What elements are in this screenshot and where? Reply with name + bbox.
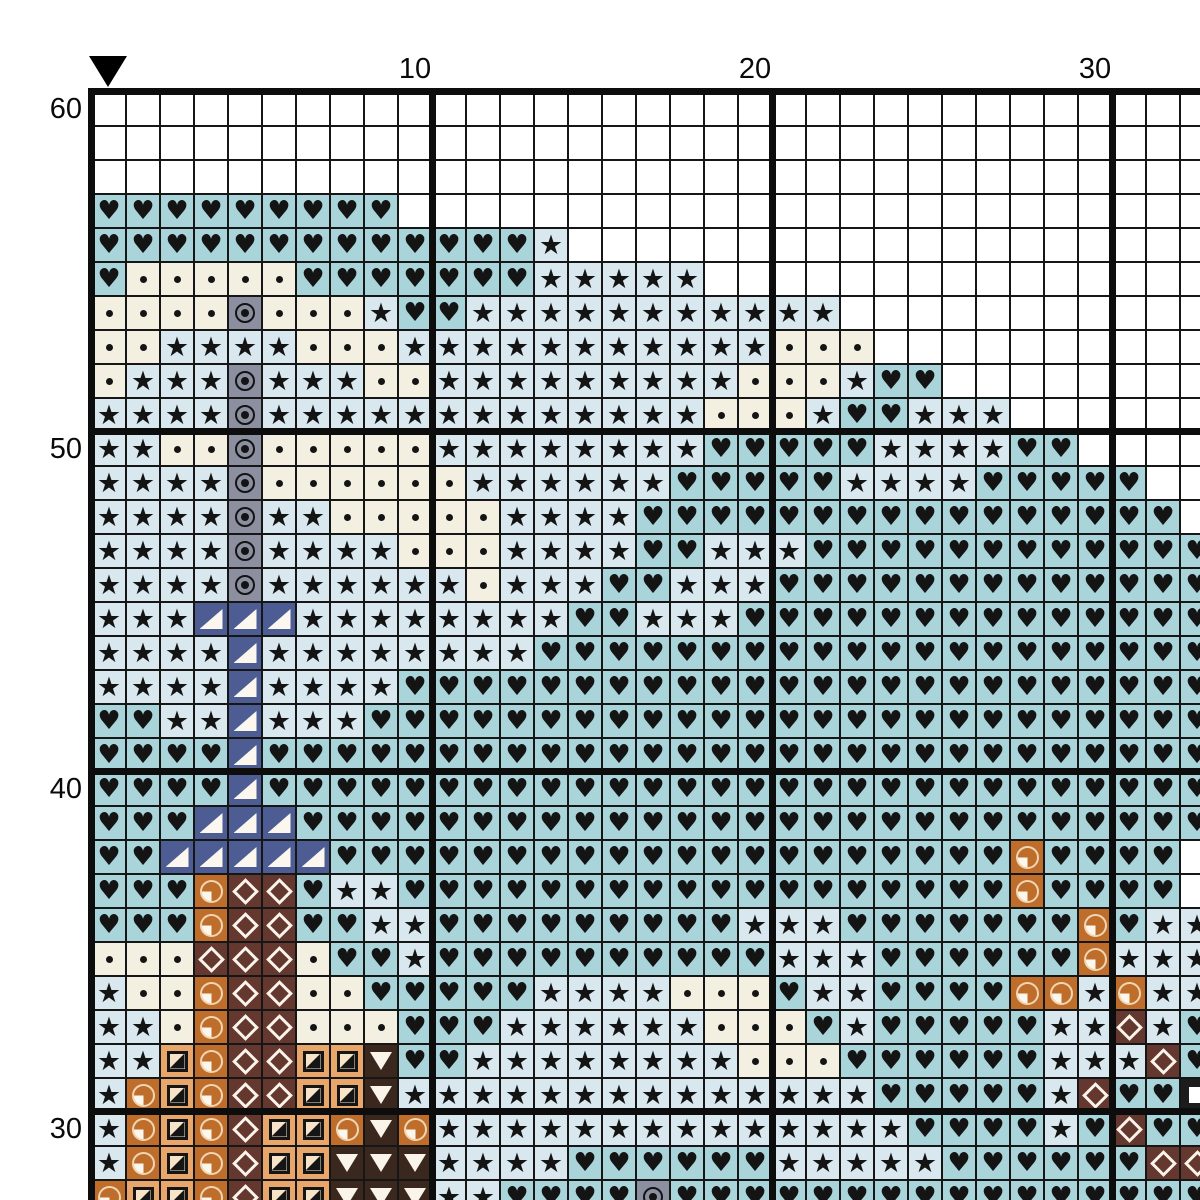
pattern-cell <box>772 262 806 296</box>
pattern-cell <box>126 942 160 976</box>
pattern-cell: ♥ <box>398 704 432 738</box>
star-icon: ★ <box>199 708 223 735</box>
heart-icon: ♥ <box>913 606 936 632</box>
pattern-cell: ♥ <box>840 398 874 432</box>
pattern-cell: ★ <box>500 534 534 568</box>
pattern-cell: ♥ <box>806 772 840 806</box>
star-icon: ★ <box>505 538 529 565</box>
pattern-cell: ♥ <box>1010 1010 1044 1044</box>
pattern-cell: ♥ <box>738 1146 772 1180</box>
pattern-cell: ★ <box>466 296 500 330</box>
pattern-cell <box>228 500 262 534</box>
star-icon: ★ <box>641 334 665 361</box>
pattern-cell: ★ <box>772 1112 806 1146</box>
heart-icon: ♥ <box>777 844 800 870</box>
pattern-cell: ♥ <box>1146 500 1180 534</box>
star-icon: ★ <box>1117 946 1141 973</box>
heart-icon: ♥ <box>1015 436 1038 462</box>
pattern-cell: ♥ <box>1044 602 1078 636</box>
heart-icon: ♥ <box>471 946 494 972</box>
heart-icon: ♥ <box>947 1150 970 1176</box>
heart-icon: ♥ <box>811 538 834 564</box>
pattern-cell: ♥ <box>670 466 704 500</box>
pattern-cell: ★ <box>534 534 568 568</box>
pattern-cell: ★ <box>602 364 636 398</box>
heart-icon: ♥ <box>267 776 290 802</box>
heart-icon: ♥ <box>1049 946 1072 972</box>
pattern-cell: ♥ <box>976 636 1010 670</box>
pattern-cell <box>1078 92 1112 126</box>
star-icon: ★ <box>709 1048 733 1075</box>
heart-icon: ♥ <box>709 436 732 462</box>
star-icon: ★ <box>97 436 121 463</box>
heart-icon: ♥ <box>947 980 970 1006</box>
heart-icon: ♥ <box>573 708 596 734</box>
star-icon: ★ <box>131 640 155 667</box>
star-icon: ★ <box>913 1150 937 1177</box>
pattern-cell: ★ <box>92 500 126 534</box>
pattern-cell: ♥ <box>976 738 1010 772</box>
star-icon: ★ <box>165 368 189 395</box>
pattern-cell <box>1112 296 1146 330</box>
heart-icon: ♥ <box>981 946 1004 972</box>
star-icon: ★ <box>1083 1048 1107 1075</box>
heart-icon: ♥ <box>1015 1048 1038 1074</box>
pattern-cell: ♥ <box>364 262 398 296</box>
pattern-cell: ♥ <box>534 670 568 704</box>
pattern-cell: ★ <box>568 1044 602 1078</box>
pattern-cell: ★ <box>296 364 330 398</box>
heart-icon: ♥ <box>845 436 868 462</box>
dot-icon <box>140 956 147 963</box>
pattern-cell <box>772 398 806 432</box>
pattern-cell <box>738 194 772 228</box>
star-icon: ★ <box>641 606 665 633</box>
pattern-cell: ♥ <box>398 228 432 262</box>
pattern-cell: ★ <box>92 1044 126 1078</box>
heart-icon: ♥ <box>437 980 460 1006</box>
pattern-cell <box>262 466 296 500</box>
pattern-cell: ★ <box>568 296 602 330</box>
row-label-60: 60 <box>26 93 82 125</box>
heart-icon: ♥ <box>1151 674 1174 700</box>
pattern-cell: ♥ <box>92 908 126 942</box>
pattern-cell: ♥ <box>976 772 1010 806</box>
heart-icon: ♥ <box>981 980 1004 1006</box>
pattern-cell <box>738 976 772 1010</box>
pattern-cell: ★ <box>772 942 806 976</box>
pattern-cell <box>194 1180 228 1200</box>
pattern-cell <box>976 262 1010 296</box>
pattern-cell: ★ <box>568 466 602 500</box>
pattern-cell: ♥ <box>670 806 704 840</box>
heart-icon: ♥ <box>1117 810 1140 836</box>
pattern-cell: ♥ <box>738 432 772 466</box>
pattern-cell: ♥ <box>738 806 772 840</box>
pattern-cell: ★ <box>126 602 160 636</box>
pattern-cell: ★ <box>126 636 160 670</box>
heart-icon: ♥ <box>369 198 392 224</box>
star-icon: ★ <box>369 878 393 905</box>
pattern-cell: ★ <box>1044 1010 1078 1044</box>
pattern-cell: ♥ <box>330 738 364 772</box>
star-icon: ★ <box>1083 1014 1107 1041</box>
star-icon: ★ <box>505 436 529 463</box>
pattern-cell: ★ <box>1112 1044 1146 1078</box>
heart-icon: ♥ <box>675 674 698 700</box>
corner-triangle-icon <box>302 847 325 867</box>
pattern-cell: ★ <box>330 704 364 738</box>
pattern-cell: ♥ <box>500 228 534 262</box>
quarter-circle-icon <box>200 1084 223 1107</box>
star-icon: ★ <box>539 504 563 531</box>
down-triangle-icon <box>370 1086 392 1104</box>
pattern-cell: ♥ <box>534 806 568 840</box>
star-icon: ★ <box>845 470 869 497</box>
pattern-cell: ♥ <box>534 738 568 772</box>
star-icon: ★ <box>471 1184 495 1200</box>
down-triangle-icon <box>370 1052 392 1070</box>
pattern-cell: ♥ <box>738 772 772 806</box>
pattern-cell: ♥ <box>1078 500 1112 534</box>
heart-icon: ♥ <box>1117 1150 1140 1176</box>
star-icon: ★ <box>675 368 699 395</box>
pattern-cell: ♥ <box>636 636 670 670</box>
pattern-cell <box>330 1146 364 1180</box>
pattern-cell: ♥ <box>806 806 840 840</box>
dot-icon <box>412 378 419 385</box>
pattern-cell <box>262 602 296 636</box>
pattern-cell: ♥ <box>1044 534 1078 568</box>
pattern-cell: ♥ <box>398 296 432 330</box>
pattern-cell <box>432 500 466 534</box>
pattern-cell <box>1146 262 1180 296</box>
pattern-cell: ♥ <box>500 806 534 840</box>
pattern-cell: ★ <box>602 296 636 330</box>
pattern-cell: ★ <box>636 1044 670 1078</box>
quarter-circle-icon <box>132 1118 155 1141</box>
heart-icon: ♥ <box>947 1048 970 1074</box>
dot-icon <box>752 412 759 419</box>
dot-icon <box>276 310 283 317</box>
pattern-cell <box>228 296 262 330</box>
pattern-cell: ★ <box>194 330 228 364</box>
pattern-cell <box>976 92 1010 126</box>
pattern-cell <box>160 92 194 126</box>
pattern-cell: ♥ <box>976 942 1010 976</box>
pattern-cell <box>262 1180 296 1200</box>
heart-icon: ♥ <box>97 776 120 802</box>
star-icon: ★ <box>573 538 597 565</box>
heart-icon: ♥ <box>777 640 800 666</box>
star-icon: ★ <box>301 572 325 599</box>
heart-icon: ♥ <box>335 912 358 938</box>
pattern-cell <box>1180 194 1200 228</box>
star-icon: ★ <box>301 606 325 633</box>
dot-icon <box>276 480 283 487</box>
pattern-cell: ♥ <box>908 976 942 1010</box>
pattern-cell: ♥ <box>1180 602 1200 636</box>
star-icon: ★ <box>539 266 563 293</box>
pattern-cell <box>500 160 534 194</box>
pattern-cell: ♥ <box>976 874 1010 908</box>
star-icon: ★ <box>131 470 155 497</box>
pattern-cell <box>126 126 160 160</box>
pattern-cell: ♥ <box>738 840 772 874</box>
heart-icon: ♥ <box>1083 1116 1106 1142</box>
pattern-cell: ★ <box>670 296 704 330</box>
pattern-cell <box>262 1146 296 1180</box>
pattern-cell <box>534 160 568 194</box>
half-square-icon <box>303 1051 324 1072</box>
heart-icon: ♥ <box>913 742 936 768</box>
pattern-cell: ♥ <box>1112 670 1146 704</box>
pattern-cell <box>194 874 228 908</box>
pattern-cell <box>670 194 704 228</box>
heart-icon: ♥ <box>573 742 596 768</box>
heart-icon: ♥ <box>743 810 766 836</box>
star-icon: ★ <box>471 300 495 327</box>
heart-icon: ♥ <box>913 946 936 972</box>
heart-icon: ♥ <box>1151 572 1174 598</box>
star-icon: ★ <box>267 368 291 395</box>
pattern-cell: ♥ <box>840 500 874 534</box>
star-icon: ★ <box>845 1014 869 1041</box>
pattern-cell: ♥ <box>806 466 840 500</box>
pattern-cell: ♥ <box>942 1044 976 1078</box>
corner-triangle-icon <box>234 847 257 867</box>
heart-icon: ♥ <box>913 708 936 734</box>
pattern-cell <box>1010 976 1044 1010</box>
star-icon: ★ <box>437 640 461 667</box>
pattern-cell: ★ <box>432 568 466 602</box>
half-square-icon <box>269 1187 290 1200</box>
heart-icon: ♥ <box>913 640 936 666</box>
pattern-cell: ★ <box>92 1010 126 1044</box>
heart-icon: ♥ <box>811 470 834 496</box>
corner-triangle-icon <box>268 813 291 833</box>
pattern-cell: ♥ <box>568 670 602 704</box>
pattern-cell <box>194 942 228 976</box>
pattern-cell: ♥ <box>1180 1112 1200 1146</box>
pattern-cell: ♥ <box>772 704 806 738</box>
pattern-cell: ♥ <box>772 602 806 636</box>
pattern-cell: ♥ <box>942 636 976 670</box>
pattern-cell <box>228 262 262 296</box>
pattern-cell <box>908 228 942 262</box>
pattern-cell: ★ <box>466 636 500 670</box>
pattern-cell <box>772 228 806 262</box>
pattern-cell <box>772 330 806 364</box>
heart-icon: ♥ <box>743 742 766 768</box>
pattern-cell: ♥ <box>1112 738 1146 772</box>
heart-icon: ♥ <box>1083 470 1106 496</box>
heart-icon: ♥ <box>743 504 766 530</box>
star-icon: ★ <box>539 1048 563 1075</box>
heart-icon: ♥ <box>471 878 494 904</box>
pattern-cell: ★ <box>738 568 772 602</box>
heart-icon: ♥ <box>267 742 290 768</box>
heart-icon: ♥ <box>1083 606 1106 632</box>
pattern-cell <box>840 330 874 364</box>
pattern-cell: ★ <box>806 398 840 432</box>
pattern-cell: ♥ <box>840 670 874 704</box>
diamond-icon <box>1150 1048 1177 1075</box>
dot-icon <box>412 548 419 555</box>
heart-icon: ♥ <box>845 640 868 666</box>
pattern-cell <box>1180 364 1200 398</box>
star-icon: ★ <box>233 334 257 361</box>
pattern-cell: ♥ <box>500 738 534 772</box>
pattern-cell <box>704 228 738 262</box>
quarter-circle-icon <box>200 1016 223 1039</box>
star-icon: ★ <box>1117 1048 1141 1075</box>
star-icon: ★ <box>811 912 835 939</box>
star-icon: ★ <box>675 1048 699 1075</box>
circled-dot-icon <box>235 507 255 527</box>
pattern-cell <box>296 330 330 364</box>
pattern-cell: ★ <box>636 398 670 432</box>
heart-icon: ♥ <box>777 436 800 462</box>
pattern-cell: ★ <box>194 364 228 398</box>
dot-icon <box>378 378 385 385</box>
pattern-cell <box>1112 398 1146 432</box>
heart-icon: ♥ <box>879 606 902 632</box>
heart-icon: ♥ <box>573 810 596 836</box>
pattern-cell: ♥ <box>466 772 500 806</box>
pattern-cell: ♥ <box>466 908 500 942</box>
heart-icon: ♥ <box>675 640 698 666</box>
corner-triangle-icon <box>200 813 223 833</box>
pattern-cell <box>602 92 636 126</box>
heart-icon: ♥ <box>437 742 460 768</box>
heart-icon: ♥ <box>505 674 528 700</box>
half-square-icon <box>337 1085 358 1106</box>
pattern-cell: ★ <box>534 1146 568 1180</box>
pattern-cell: ★ <box>568 1112 602 1146</box>
star-icon: ★ <box>131 402 155 429</box>
star-icon: ★ <box>879 470 903 497</box>
star-icon: ★ <box>403 572 427 599</box>
down-triangle-icon <box>336 1154 358 1172</box>
star-icon: ★ <box>199 504 223 531</box>
heart-icon: ♥ <box>879 878 902 904</box>
star-icon: ★ <box>199 470 223 497</box>
pattern-cell <box>1010 840 1044 874</box>
quarter-circle-icon <box>200 880 223 903</box>
star-icon: ★ <box>437 606 461 633</box>
pattern-cell: ★ <box>92 976 126 1010</box>
corner-triangle-icon <box>234 711 257 731</box>
heart-icon: ♥ <box>301 266 324 292</box>
star-icon: ★ <box>539 368 563 395</box>
heart-icon: ♥ <box>845 776 868 802</box>
pattern-cell: ♥ <box>466 262 500 296</box>
pattern-cell: ♥ <box>840 432 874 466</box>
pattern-cell: ♥ <box>670 1146 704 1180</box>
heart-icon: ♥ <box>1083 844 1106 870</box>
pattern-cell: ★ <box>466 1112 500 1146</box>
heart-icon: ♥ <box>641 844 664 870</box>
diamond-icon <box>232 1184 259 1200</box>
pattern-cell: ♥ <box>296 874 330 908</box>
heart-icon: ♥ <box>267 198 290 224</box>
pattern-cell: ♥ <box>364 942 398 976</box>
pattern-cell: ♥ <box>840 874 874 908</box>
pattern-cell <box>432 92 466 126</box>
pattern-cell: ★ <box>534 568 568 602</box>
pattern-cell <box>330 1044 364 1078</box>
star-icon: ★ <box>131 674 155 701</box>
diamond-icon <box>232 946 259 973</box>
pattern-cell: ★ <box>840 1146 874 1180</box>
heart-icon: ♥ <box>981 878 1004 904</box>
white-square-icon <box>1189 1087 1200 1103</box>
pattern-cell: ♥ <box>1078 874 1112 908</box>
heart-icon: ♥ <box>641 708 664 734</box>
dot-icon <box>480 514 487 521</box>
pattern-cell <box>1010 160 1044 194</box>
pattern-cell: ♥ <box>840 704 874 738</box>
pattern-cell: ★ <box>602 534 636 568</box>
pattern-cell: ★ <box>92 398 126 432</box>
pattern-cell: ♥ <box>670 704 704 738</box>
heart-icon: ♥ <box>1015 1150 1038 1176</box>
heart-icon: ♥ <box>539 810 562 836</box>
pattern-cell <box>330 126 364 160</box>
pattern-cell: ★ <box>636 1112 670 1146</box>
pattern-cell: ♥ <box>840 738 874 772</box>
pattern-cell: ★ <box>500 1112 534 1146</box>
dot-icon <box>208 446 215 453</box>
heart-icon: ♥ <box>641 674 664 700</box>
pattern-cell <box>1146 160 1180 194</box>
heart-icon: ♥ <box>641 776 664 802</box>
pattern-cell: ♥ <box>330 228 364 262</box>
pattern-cell: ♥ <box>874 1078 908 1112</box>
pattern-cell <box>228 1078 262 1112</box>
heart-icon: ♥ <box>471 708 494 734</box>
pattern-cell: ♥ <box>738 602 772 636</box>
pattern-cell: ★ <box>160 636 194 670</box>
star-icon: ★ <box>675 606 699 633</box>
heart-icon: ♥ <box>845 538 868 564</box>
heart-icon: ♥ <box>913 1014 936 1040</box>
star-icon: ★ <box>743 572 767 599</box>
star-icon: ★ <box>913 470 937 497</box>
pattern-cell <box>976 160 1010 194</box>
heart-icon: ♥ <box>709 776 732 802</box>
star-icon: ★ <box>607 538 631 565</box>
pattern-cell <box>1010 228 1044 262</box>
heart-icon: ♥ <box>607 572 630 598</box>
star-icon: ★ <box>505 572 529 599</box>
pattern-cell: ★ <box>296 500 330 534</box>
heart-icon: ♥ <box>1049 640 1072 666</box>
pattern-cell: ★ <box>534 364 568 398</box>
pattern-cell <box>398 1146 432 1180</box>
pattern-cell: ★ <box>670 432 704 466</box>
heart-icon: ♥ <box>1151 538 1174 564</box>
star-icon: ★ <box>879 436 903 463</box>
star-icon: ★ <box>369 572 393 599</box>
heart-icon: ♥ <box>981 1082 1004 1108</box>
star-icon: ★ <box>97 1014 121 1041</box>
heart-icon: ♥ <box>913 572 936 598</box>
pattern-cell <box>228 432 262 466</box>
pattern-cell: ♥ <box>1010 806 1044 840</box>
pattern-cell: ★ <box>704 1112 738 1146</box>
